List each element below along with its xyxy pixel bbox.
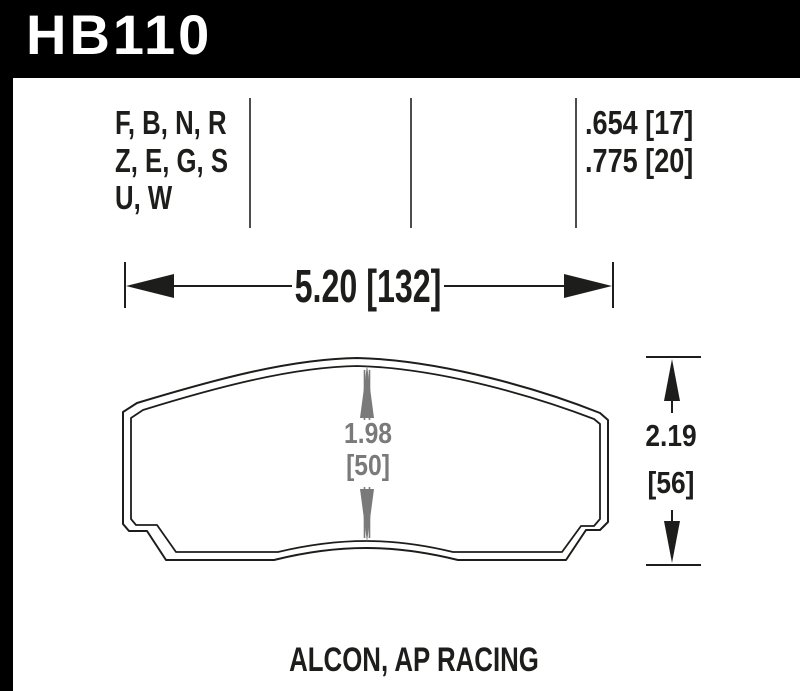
thickness-line-1: .654 [17] (585, 104, 693, 142)
compound-list: F, B, N, R Z, E, G, S U, W (115, 104, 228, 217)
column-divider-1 (249, 98, 251, 228)
width-arrow-left-icon (126, 274, 174, 298)
pad-height-value: 1.98 [50] (344, 418, 392, 482)
applications-text: ALCON, AP RACING (289, 643, 539, 677)
overall-height-mm: [56] (645, 459, 696, 506)
compound-line-2: Z, E, G, S (115, 142, 228, 180)
thickness-line-2: .775 [20] (585, 142, 693, 180)
width-arrow-right-icon (564, 274, 612, 298)
brake-pad-diagram-page: { "header": { "part_number": "HB110" }, … (0, 0, 800, 691)
compound-line-1: F, B, N, R (115, 104, 228, 142)
overall-height-arrow-up-icon (664, 359, 680, 401)
overall-height-inches: 2.19 (645, 412, 696, 459)
column-divider-3 (575, 98, 577, 228)
compound-line-3: U, W (115, 179, 228, 217)
overall-height-arrow-down-icon (664, 521, 680, 563)
overall-height-value: 2.19 [56] (645, 412, 696, 506)
pad-height-inches: 1.98 (344, 418, 392, 450)
pad-height-mm: [50] (344, 450, 392, 482)
overall-width-value: 5.20 [132] (295, 263, 442, 309)
column-divider-2 (410, 98, 412, 228)
thickness-list: .654 [17] .775 [20] (585, 104, 693, 179)
